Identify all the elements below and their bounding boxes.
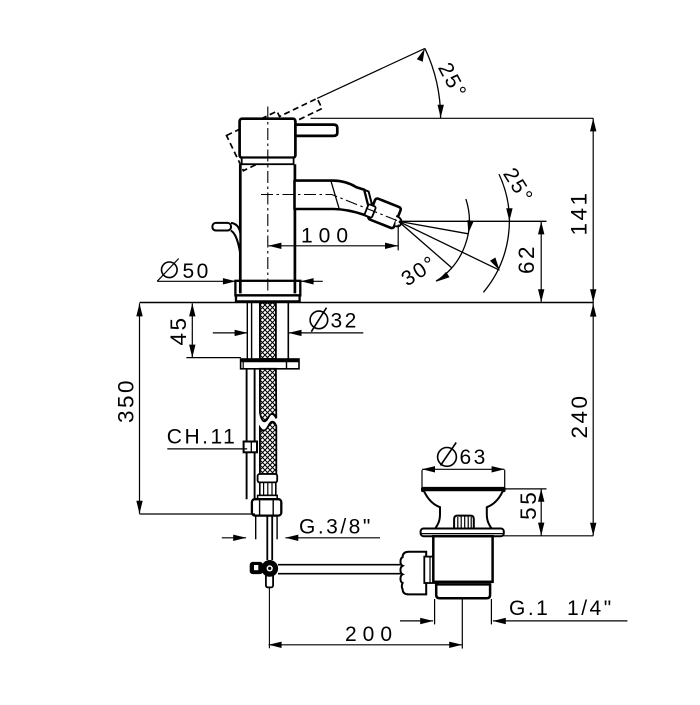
svg-text:32: 32 (331, 310, 359, 333)
svg-text:45: 45 (166, 315, 191, 345)
svg-text:240: 240 (567, 393, 592, 438)
svg-text:100: 100 (301, 224, 354, 247)
svg-text:CH.11: CH.11 (167, 426, 237, 449)
svg-text:30°: 30° (397, 251, 441, 291)
svg-text:200: 200 (345, 623, 398, 646)
svg-text:62: 62 (514, 244, 539, 274)
svg-text:55: 55 (516, 490, 541, 520)
svg-text:141: 141 (567, 190, 592, 235)
svg-text:350: 350 (114, 378, 139, 423)
svg-text:G.3/8": G.3/8" (299, 516, 373, 539)
svg-text:50: 50 (183, 260, 211, 283)
svg-text:G.1 1/4": G.1 1/4" (509, 597, 614, 620)
svg-text:63: 63 (460, 446, 488, 469)
